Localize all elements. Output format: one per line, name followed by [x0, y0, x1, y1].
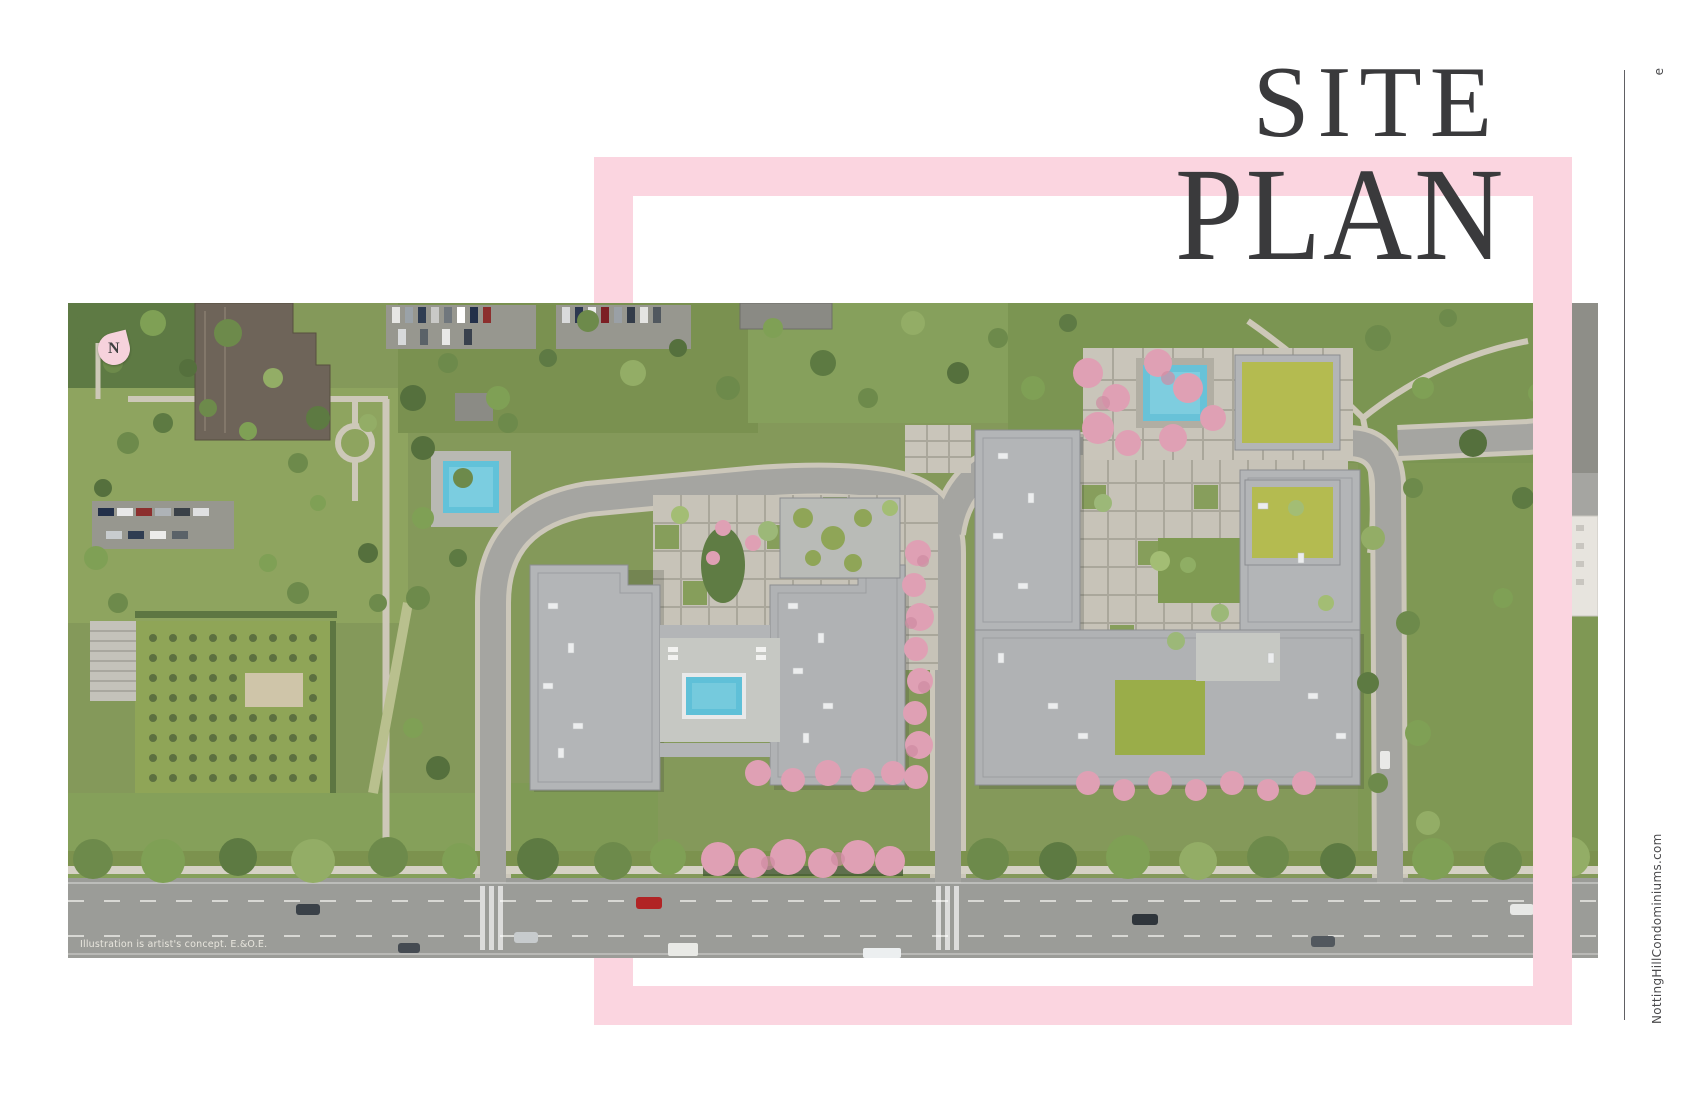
page-title-line1: SITE — [1253, 52, 1500, 154]
north-label: N — [108, 340, 120, 358]
pink-frame-bottom — [594, 986, 1572, 1025]
margin-rule-line — [1624, 70, 1625, 1020]
site-plan-aerial-rendering: N Illustration is artist's concept. E.&O… — [68, 303, 1598, 958]
website-url-text: NottingHillCondominiums.com — [1650, 868, 1664, 1024]
disclaimer-text: Illustration is artist's concept. E.&O.E… — [80, 939, 267, 950]
page-marker: e — [1652, 68, 1666, 75]
courtyard-pool — [660, 638, 780, 742]
outdoor-pool-left — [431, 451, 511, 527]
page-title-line2: PLAN — [1175, 148, 1505, 281]
pink-frame-right — [1533, 157, 1572, 1025]
playground — [245, 673, 303, 707]
